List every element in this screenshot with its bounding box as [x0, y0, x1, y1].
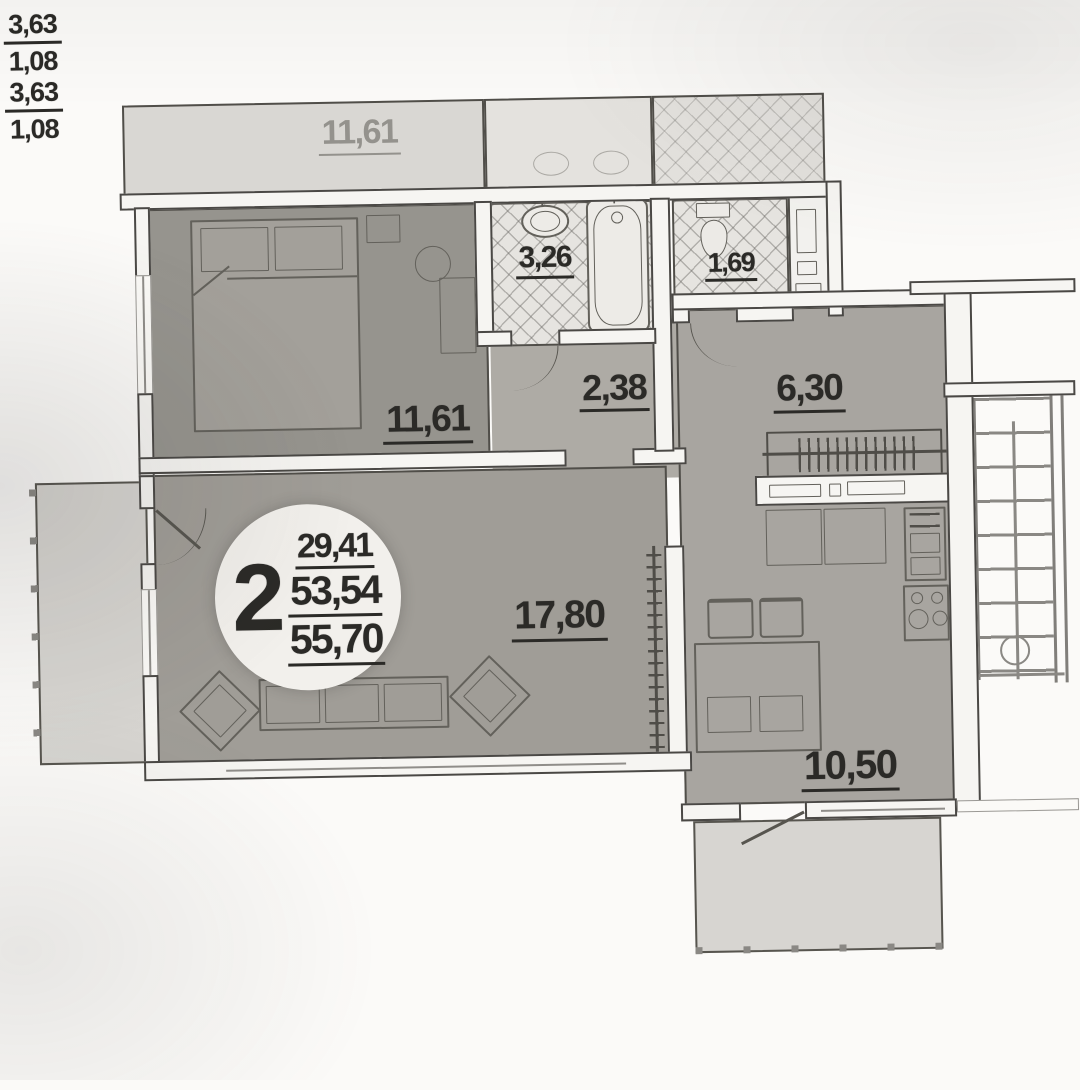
apartment-areas: 29,41 53,54 55,70 — [286, 527, 385, 667]
living-area-value: 29,41 — [295, 527, 375, 570]
label-hallway-area: 2,38 — [553, 367, 676, 412]
label-kitchen-area: 10,50 — [786, 743, 915, 792]
label-entry-area: 6,30 — [753, 368, 866, 414]
balcony-left — [35, 481, 152, 765]
cabinet — [823, 508, 886, 565]
wall — [957, 798, 1079, 812]
balcony-area: 3,63 — [3, 9, 62, 45]
dining-table — [694, 641, 822, 753]
wall — [476, 330, 512, 347]
kitchen-counter — [755, 472, 950, 506]
wall — [142, 675, 160, 767]
window-living-left — [141, 589, 159, 677]
wall — [139, 475, 156, 509]
label-bedroom-area: 11,61 — [365, 399, 490, 445]
wall — [650, 198, 675, 452]
duct — [796, 209, 817, 253]
wall — [134, 207, 151, 277]
pillow — [200, 227, 269, 272]
wall — [474, 201, 495, 347]
wall — [943, 380, 1075, 397]
balcony-reduced-area: 1,08 — [10, 112, 59, 146]
total-area-value: 55,70 — [287, 616, 384, 667]
window-bedroom — [135, 275, 153, 395]
rooms-count: 2 — [231, 550, 282, 646]
wall — [909, 278, 1075, 295]
duct — [797, 261, 817, 275]
stove — [903, 585, 950, 642]
label-bathroom-area: 3,26 — [499, 241, 592, 279]
nightstand — [366, 215, 401, 244]
label-balcony-bottom: 3,63 1,08 — [0, 76, 77, 146]
toilet-tank — [696, 202, 730, 218]
label-neighbor-area: 11,61 — [264, 114, 455, 157]
chair — [707, 598, 754, 639]
cabinet — [765, 509, 822, 566]
wall — [805, 798, 957, 819]
wardrobe — [766, 429, 943, 478]
wall — [681, 802, 741, 821]
label-balcony-left: 3,63 1,08 — [0, 8, 75, 78]
floor-plan: + + + — [0, 0, 1080, 1090]
room-neighbor-bath — [484, 96, 654, 191]
wall — [140, 563, 157, 591]
pillow — [274, 226, 343, 271]
wall — [664, 545, 688, 757]
balcony-bottom — [693, 817, 943, 954]
chair — [759, 597, 804, 638]
balcony-area: 3,63 — [4, 77, 63, 113]
room-neighbor-tiled — [652, 93, 826, 188]
desk — [439, 277, 476, 354]
wall — [558, 328, 656, 346]
fridge — [903, 507, 946, 582]
label-wc-area: 1,69 — [683, 248, 780, 283]
label-living-area: 17,80 — [497, 595, 622, 643]
balcony-reduced-area: 1,08 — [9, 44, 58, 78]
area-value: 53,54 — [288, 568, 383, 618]
